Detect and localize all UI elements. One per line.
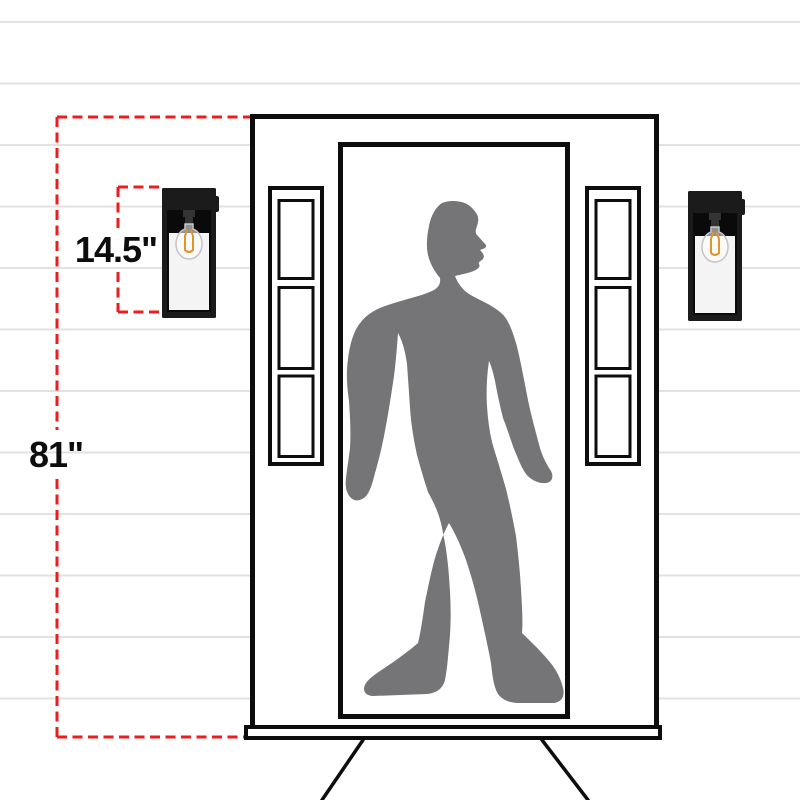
mount-height-dimension-line [57, 117, 250, 737]
walkway-line-left [322, 740, 363, 800]
walkway-line-right [542, 740, 588, 800]
door-threshold [246, 727, 660, 738]
sidelight-left [270, 188, 322, 464]
wall-sconce-right [688, 191, 745, 321]
mount-height-label: 81" [29, 437, 83, 473]
product-dimension-diagram: 14.5" 81" [0, 0, 800, 800]
wall-sconce-left [162, 188, 219, 318]
diagram-svg [0, 0, 800, 800]
sidelight-right [587, 188, 639, 464]
fixture-height-label: 14.5" [75, 232, 157, 268]
